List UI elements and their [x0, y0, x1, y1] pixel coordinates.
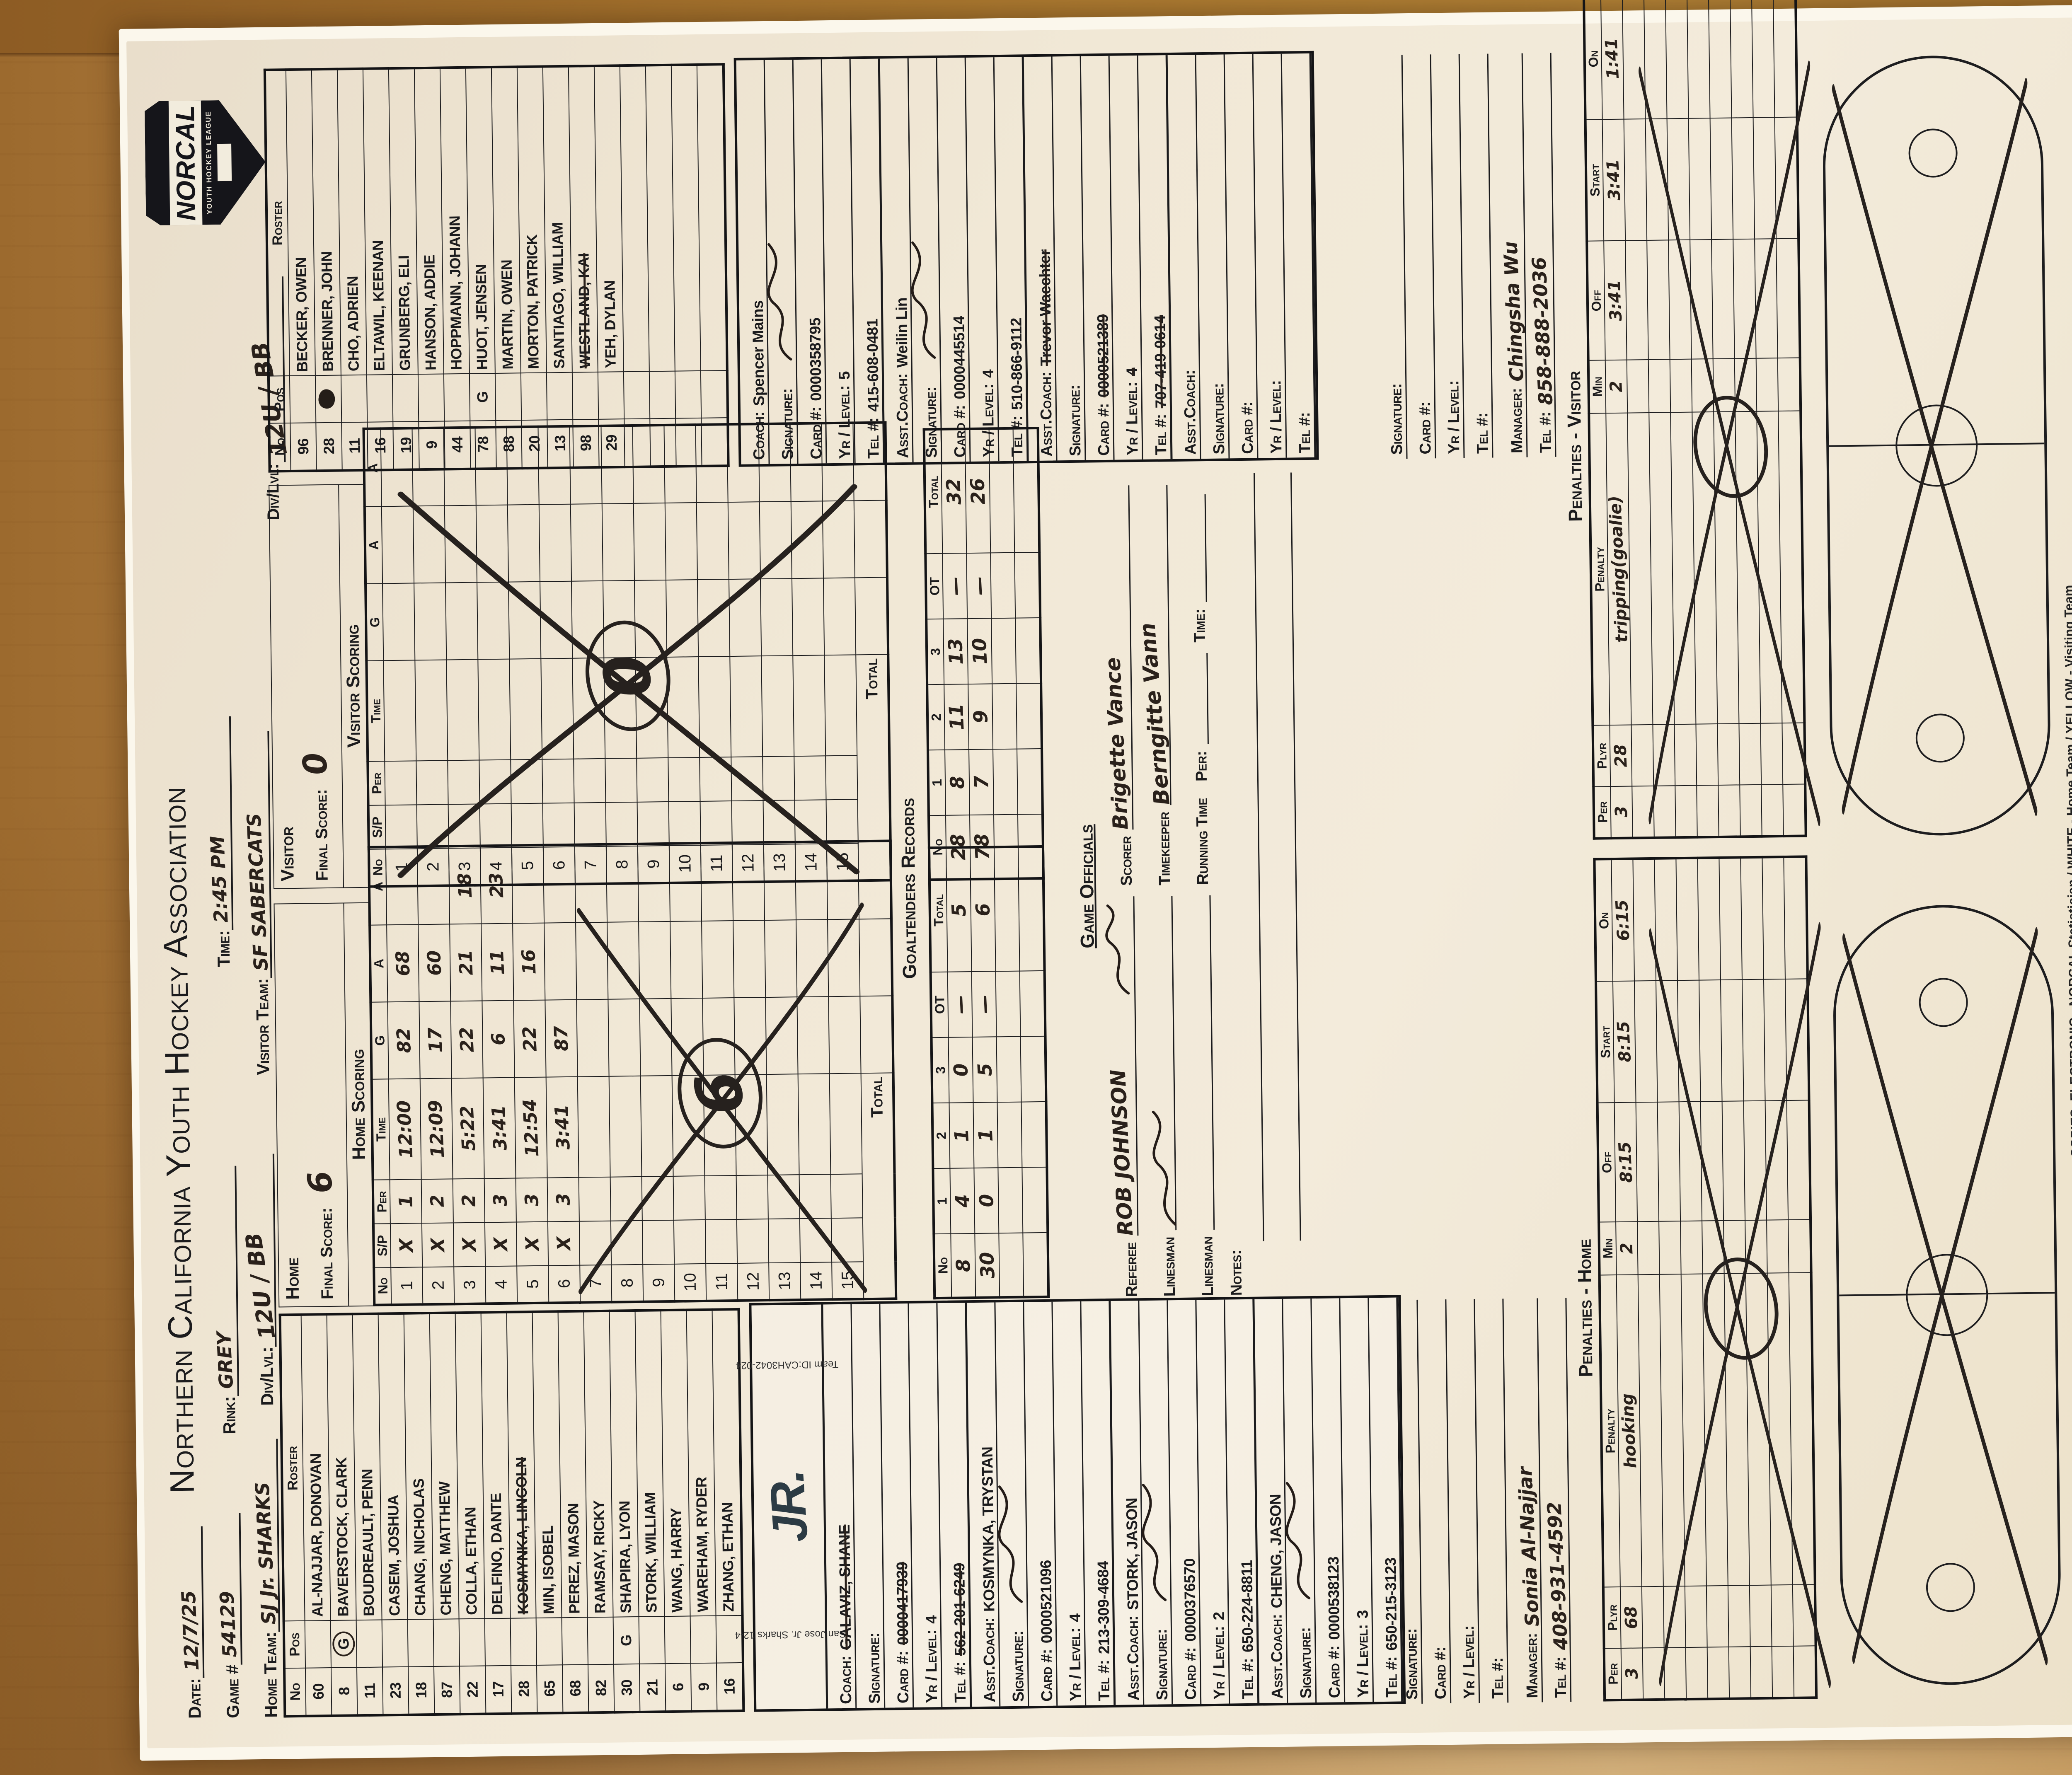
- tel-number: 415-608-0481: [864, 319, 882, 412]
- goalie-value: 6: [971, 902, 994, 917]
- scoring-g-value: 6: [487, 1032, 509, 1046]
- pen-per: 3: [1610, 786, 1633, 839]
- home-div-label: Div/Lvl:: [257, 1347, 278, 1406]
- game-officials-block: Game Officials Referee ROB JOHNSON Score…: [1070, 473, 1302, 1298]
- col-time: Time: [372, 1079, 390, 1180]
- visitor-roster-pos-header: Pos: [269, 376, 290, 423]
- scoring-g-value: 87: [550, 1025, 573, 1052]
- coach-tel-row: Tel #:213-309-4684: [1081, 1301, 1116, 1705]
- table-row: 28KOSMYNKA, LINCOLN: [507, 1312, 537, 1714]
- pen-col-per: Per: [1593, 786, 1611, 838]
- col-1: 1: [928, 750, 946, 815]
- player-position: [562, 1617, 588, 1665]
- coach-signature-row: Signature:: [852, 1304, 885, 1708]
- manager-label: Manager:: [1523, 1633, 1542, 1698]
- player-position: [392, 374, 419, 422]
- card-number: 0000376570: [1181, 1558, 1199, 1642]
- scoring-time: 3:41: [483, 1078, 516, 1179]
- scoring-per-value: 3: [489, 1193, 511, 1207]
- scoring-sp: X: [516, 1222, 548, 1266]
- player-name: WESTLAND, KAI: [569, 66, 598, 372]
- home-extra-signature-block: Signature:Card #:Yr / Level:Tel #:: [1389, 1299, 1508, 1704]
- table-row: 78GHUOT, JENSEN: [466, 67, 496, 469]
- linesman2-line: [1183, 895, 1215, 1230]
- player-name: [620, 65, 649, 372]
- referee-name: ROB JOHNSON: [1106, 1069, 1138, 1236]
- table-row: 21STORK, WILLIAM: [635, 1310, 666, 1712]
- coach-card-row: Card #:0000445514: [937, 58, 971, 462]
- home-team-logo-row: San Jose Jr. Sharks 12-4 JR. Team ID:CAH…: [751, 1304, 828, 1709]
- coach-signature-row: Signature:: [909, 58, 942, 462]
- scoring-a1-value: 16: [518, 948, 540, 975]
- player-name: [671, 65, 701, 371]
- goalie-value: 5: [947, 903, 970, 917]
- tel-label: Tel #:: [1095, 1660, 1113, 1701]
- table-row: 2X212:091760: [417, 846, 454, 1304]
- yr-level-label: Yr / Level:: [1460, 1625, 1479, 1699]
- player-position: [536, 1618, 562, 1665]
- goalie-value: 30: [975, 1251, 999, 1279]
- coach-role-label: Coach:: [837, 1656, 855, 1704]
- coach-yr-row: Yr / Level:4: [1110, 56, 1143, 460]
- goalie-cell: 8: [951, 1233, 975, 1298]
- goalie-value: 28: [946, 833, 970, 861]
- card-label: Card #:: [1416, 401, 1435, 454]
- scoring-per-value: 1: [395, 1195, 416, 1208]
- scoring-g-value: 82: [393, 1027, 415, 1054]
- goalie-value: 8: [946, 775, 968, 790]
- pen-plyr-value: 68: [1621, 1606, 1641, 1630]
- goalie-cell: 8: [945, 750, 970, 815]
- pen-plyr: 68: [1620, 1586, 1643, 1648]
- coach-signature-row: Signature:: [1053, 56, 1086, 461]
- referee-signature: [1100, 901, 1135, 1001]
- signature-label: Signature:: [865, 1632, 884, 1704]
- player-name: MORTON, PATRICK: [517, 67, 547, 373]
- home-roster-no-header: No: [284, 1668, 306, 1717]
- col-no: No: [369, 849, 386, 886]
- time-line: [1178, 494, 1207, 602]
- visitor-manager-name: Chingsha Wu: [1499, 241, 1528, 382]
- scoring-sp-value: X: [553, 1236, 575, 1251]
- pen-on-value: 1:41: [1602, 38, 1623, 80]
- player-number: 28: [316, 423, 342, 471]
- player-number: 29: [598, 419, 625, 467]
- jr-sharks-logo: JR.: [758, 1470, 819, 1544]
- pen-off-value: 3:41: [1605, 279, 1626, 322]
- table-row: 28BRENNER, JOHN: [312, 69, 342, 471]
- player-name: CHO, ADRIEN: [337, 69, 367, 375]
- pen-per-value: 3: [1612, 805, 1631, 818]
- visitor-roster-header: Roster: [265, 70, 290, 376]
- table-row: 9HANSON, ADDIE: [414, 68, 445, 470]
- coach-role-label: Asst.Coach:: [980, 1618, 999, 1702]
- player-number: 96: [290, 423, 316, 471]
- home-team-label: Home Team:: [260, 1632, 281, 1718]
- player-number: 30: [614, 1664, 640, 1712]
- manager-label: Manager:: [1508, 388, 1526, 453]
- table-row: [620, 65, 651, 467]
- pen-col-per: Per: [1604, 1648, 1622, 1700]
- goalie-cell: —: [972, 971, 997, 1037]
- player-name: AL-NAJJAR, DONOVAN: [301, 1314, 331, 1621]
- scoring-sp-value: X: [395, 1238, 417, 1253]
- coach-role-label: Asst.Coach:: [1268, 1614, 1287, 1699]
- goalie-value: 13: [944, 638, 968, 665]
- extra-signature-label: Signature:: [1389, 1300, 1423, 1704]
- table-row: 82RAMSAY, RICKY: [584, 1311, 615, 1713]
- goalie-value: 5: [973, 1062, 996, 1077]
- goalie-cell: 10: [967, 618, 992, 684]
- time2-label: Time:: [1191, 609, 1209, 643]
- player-position: [418, 374, 444, 421]
- player-position: G: [470, 373, 496, 421]
- player-number: 23: [382, 1667, 409, 1715]
- yr-level: 5: [836, 371, 853, 380]
- col-3: 3: [932, 1037, 949, 1103]
- player-name: [646, 65, 675, 372]
- goalie-cell: [997, 1037, 1021, 1103]
- player-position: [305, 1620, 331, 1668]
- coach-signature-row: Signature:: [1139, 1300, 1173, 1705]
- player-position: [701, 370, 728, 418]
- date-field: Date: 12/7/25: [178, 1526, 205, 1719]
- visitor-rink-crossout: [1826, 64, 2043, 833]
- col-a: A: [370, 925, 387, 1002]
- col-g: G: [366, 583, 383, 660]
- scorer-name: Brigette Vance: [1101, 657, 1133, 830]
- card-number: 0000445514: [950, 316, 968, 399]
- per-line: [1180, 653, 1209, 745]
- coach-tel-row: Tel #:562-201-6249: [937, 1303, 972, 1707]
- home-final-score-label: Final Score:: [317, 1207, 336, 1299]
- running-time-label: Running Time: [1193, 798, 1213, 885]
- signature-scribble: [1137, 1480, 1174, 1605]
- linesman2-label: Linesman: [1198, 1236, 1217, 1296]
- player-position: [367, 375, 393, 422]
- scoring-sp-value: X: [490, 1237, 512, 1252]
- visitor-final-score-value: 0: [295, 750, 335, 777]
- goalie-cell: [991, 618, 1016, 684]
- goalie-value: —: [973, 994, 996, 1014]
- table-row: 17DELFINO, DANTE: [481, 1312, 512, 1714]
- table-row: [1018, 846, 1048, 1297]
- home-div-value: 12U / BB: [240, 1231, 281, 1341]
- scorer-label: Scorer: [1118, 836, 1136, 886]
- table-row: 23CASEM, JOSHUA: [378, 1313, 409, 1715]
- tel-label: Tel #:: [951, 1661, 970, 1703]
- home-goaltenders-table: No 1 2 3 OT Total 8410—530015—6: [928, 845, 1050, 1299]
- yr-level: 3: [1354, 1610, 1371, 1619]
- table-row: 18CHANG, NICHOLAS: [404, 1313, 435, 1715]
- goalie-value: 8: [952, 1258, 975, 1273]
- home-team-field: Home Team: SJ Jr. SHARKS: [253, 1439, 281, 1718]
- pen-col-on: On: [1584, 0, 1602, 120]
- scoring-a1-value: 21: [455, 949, 477, 976]
- coach-name: Trevor Waechter: [1036, 249, 1055, 366]
- table-row: 87CHENG, MATTHEW: [430, 1313, 460, 1715]
- signature-label: Signature:: [778, 388, 797, 460]
- goalie-cell: [1013, 428, 1040, 553]
- player-number: [701, 418, 728, 466]
- position-value: G: [474, 391, 491, 403]
- card-label: Card #:: [1095, 403, 1113, 456]
- scoring-a1-value: 60: [423, 950, 445, 976]
- pen-off: 8:15: [1615, 1102, 1638, 1222]
- norcal-badge-subtitle: YOUTH HOCKEY LEAGUE: [204, 111, 214, 214]
- table-row: 3X25:22222118: [449, 846, 486, 1304]
- position-blot-mark: [316, 388, 337, 410]
- table-row: 60AL-NAJJAR, DONOVAN: [301, 1314, 332, 1716]
- coach-card-row: Card #:: [1225, 54, 1259, 459]
- table-row: 5X312:542216: [512, 845, 549, 1303]
- player-name: PEREZ, MASON: [558, 1311, 588, 1618]
- coach-yr-row: Yr / Level:4: [966, 57, 1000, 462]
- row-number: 1: [391, 1267, 423, 1305]
- tel-label: Tel #:: [1537, 412, 1555, 453]
- position-value: G: [332, 1632, 355, 1657]
- coach-yr-row: Yr / Level:2: [1196, 1300, 1230, 1704]
- goalie-cell: 1: [949, 1103, 974, 1168]
- col-no: No: [934, 1234, 951, 1298]
- goalie-value: 7: [970, 775, 992, 789]
- pen-min: 2: [1605, 360, 1628, 414]
- player-number: 21: [639, 1664, 666, 1712]
- player-position: [341, 375, 367, 423]
- tel-number: 562-201-6249: [951, 1563, 969, 1656]
- table-row: 22COLLA, ETHAN: [455, 1313, 486, 1715]
- player-number: 11: [357, 1667, 383, 1716]
- tel-label: Tel #:: [1152, 414, 1170, 455]
- date-label: Date:: [184, 1678, 205, 1719]
- yr-level: 4: [1123, 368, 1141, 376]
- scoring-time: 12:00: [389, 1079, 421, 1180]
- goalie-cell: [1021, 1102, 1047, 1168]
- player-name: MIN, ISOBEL: [533, 1311, 562, 1618]
- card-number: 0000521096: [1037, 1560, 1055, 1643]
- signature-label: Signature:: [1387, 383, 1406, 455]
- card-label: Card #:: [1432, 1647, 1450, 1699]
- pen-start-value: 3:41: [1603, 159, 1624, 201]
- player-position: [547, 372, 573, 420]
- player-number: 11: [341, 422, 368, 471]
- extra-card-label: Card #:: [1418, 1299, 1451, 1704]
- goalie-cell: 0: [974, 1168, 999, 1233]
- signature-scribble: [1280, 1479, 1318, 1603]
- pen-penalty: tripping(goalie): [1606, 413, 1631, 725]
- visitor-team-value: SF SABERCATS: [242, 813, 272, 972]
- player-name: WAREHAM, RYDER: [687, 1310, 716, 1616]
- tel-number: 213-309-4684: [1094, 1561, 1113, 1654]
- pen-off: 3:41: [1604, 241, 1627, 360]
- pen-min-value: 2: [1607, 380, 1626, 393]
- table-row: 30GSHAPIRA, LYON: [610, 1311, 640, 1712]
- scoring-time-value: 12:54: [519, 1098, 543, 1157]
- player-position: G: [331, 1620, 357, 1668]
- scoring-g: 6: [482, 1001, 514, 1078]
- pen-penalty-value: hooking: [1618, 1393, 1640, 1469]
- table-row: 11CHO, ADRIEN: [337, 69, 368, 471]
- pen-start: 8:15: [1613, 981, 1636, 1103]
- player-position: [675, 371, 701, 418]
- home-final-score-box: Home Final Score: 6: [274, 903, 348, 1308]
- goalie-cell: 5: [973, 1037, 997, 1103]
- rink-label: Rink:: [219, 1396, 240, 1434]
- pen-min: 2: [1616, 1221, 1638, 1275]
- yr-level-label: Yr / Level:: [1354, 1624, 1372, 1698]
- player-position: [433, 1619, 460, 1666]
- player-name: COLLA, ETHAN: [455, 1313, 485, 1619]
- goalie-cell: 9: [968, 684, 993, 750]
- coach-card-row: Card #:0000376570: [1168, 1300, 1201, 1704]
- scoring-sp-value: X: [521, 1236, 543, 1251]
- visitor-extra-signature-block: Signature:Card #:Yr / Level:Tel #:: [1374, 54, 1493, 459]
- goalie-cell: 7: [969, 749, 994, 815]
- scoring-g-value: 22: [519, 1025, 541, 1052]
- pen-penalty-value: tripping(goalie): [1606, 495, 1631, 643]
- extra-card-label: Card #:: [1403, 54, 1436, 459]
- scoring-time-value: 12:09: [424, 1099, 448, 1158]
- home-manager-block: Manager: Sonia Al-Najjar Tel #: 408-931-…: [1509, 1298, 1571, 1703]
- table-row: 13SANTIAGO, WILLIAM: [543, 66, 574, 468]
- card-label: Card #:: [1182, 1647, 1201, 1700]
- goalie-cell: 0: [949, 1037, 973, 1103]
- goalie-cell: [989, 428, 1015, 553]
- team-id-small-text: Team ID:CAH3042-024: [736, 1358, 838, 1371]
- goalie-cell: 28: [946, 815, 971, 880]
- col-no: No: [374, 1267, 391, 1305]
- visitor-goaltenders-table: No 1 2 3 OT Total 2881113—32787910—26: [923, 427, 1045, 881]
- pen-col-off: Off: [1587, 241, 1605, 360]
- player-number: 9: [691, 1663, 717, 1712]
- scoring-sp: X: [485, 1222, 517, 1266]
- player-position: [290, 375, 316, 423]
- coach-signature-row: Signature:: [1196, 54, 1230, 459]
- signature-label: Signature:: [1066, 385, 1084, 457]
- table-row: 44HOPPMANN, JOHANN: [440, 68, 471, 469]
- player-name: CHENG, MATTHEW: [430, 1313, 459, 1619]
- goalie-value: 1: [950, 1128, 973, 1143]
- table-row: 20MORTON, PATRICK: [517, 67, 548, 469]
- norcal-shield-icon: NORCAL YOUTH HOCKEY LEAGUE: [145, 100, 266, 226]
- goalie-cell: [990, 553, 1015, 619]
- coach-tel-row: Tel #:: [1282, 53, 1317, 458]
- goalie-cell: [1014, 552, 1040, 618]
- row-number: 4: [485, 1266, 517, 1303]
- scoring-a1: 21: [450, 924, 482, 1001]
- player-position: [459, 1619, 485, 1666]
- pen-start: 3:41: [1602, 119, 1626, 241]
- goalie-cell: —: [966, 553, 991, 619]
- pen-penalty: hooking: [1617, 1274, 1642, 1587]
- player-number: 17: [485, 1666, 511, 1714]
- scoring-per-value: 3: [521, 1193, 542, 1207]
- player-position: [511, 1618, 537, 1666]
- col-per: Per: [368, 761, 385, 805]
- time-field: Time: 2:45 PM: [206, 716, 234, 967]
- player-position: [356, 1620, 382, 1668]
- coach-tel-row: Tel #:415-608-0481: [851, 59, 885, 463]
- game-number-field: Game # 54129: [215, 1513, 243, 1719]
- player-number: 88: [496, 420, 522, 469]
- tel-label: Tel #:: [864, 417, 883, 459]
- visitor-manager-block: Manager: Chingsha Wu Tel #: 858-888-2036: [1494, 53, 1556, 458]
- visitor-coach-block: Coach:Spencer MainsSignature:Card #:0000…: [734, 51, 1319, 467]
- col-g: G: [370, 1002, 388, 1079]
- col-sp: S/P: [368, 805, 386, 849]
- col-sp: S/P: [373, 1224, 391, 1267]
- coach-name: GALAVIZ, SHANE: [836, 1524, 855, 1650]
- pen-col-on: On: [1594, 859, 1613, 981]
- player-name: MARTIN, OWEN: [491, 67, 521, 373]
- extra-tel-label: Tel #:: [1460, 54, 1493, 458]
- player-name: HANSON, ADDIE: [414, 68, 444, 375]
- player-number: 8: [331, 1667, 357, 1716]
- player-number: 78: [470, 421, 496, 469]
- goalie-cell: 26: [965, 428, 991, 553]
- col-time: Time: [366, 660, 385, 761]
- visitor-final-score-label: Final Score:: [312, 789, 332, 881]
- signature-label: Signature:: [1297, 1627, 1315, 1699]
- player-number: 13: [547, 420, 573, 468]
- table-row: 11BOUDREAULT, PENN: [353, 1314, 383, 1716]
- player-number: 65: [537, 1665, 563, 1713]
- goalie-value: 4: [951, 1194, 974, 1208]
- timekeeper-signature-name: Berngitte Vann: [1135, 622, 1175, 806]
- visitor-team-field: Visitor Team: SF SABERCATS: [244, 731, 273, 1075]
- scoring-time-value: 5:22: [456, 1105, 479, 1152]
- scoring-sp: X: [390, 1223, 422, 1267]
- player-name: BOUDREAULT, PENN: [353, 1314, 382, 1620]
- player-position: [624, 371, 650, 419]
- pen-min-value: 2: [1617, 1242, 1636, 1255]
- game-number-value: 54129: [215, 1591, 241, 1658]
- player-position: [485, 1618, 511, 1666]
- visitor-roster-no-header: No: [269, 423, 290, 472]
- coach-card-row: Card #:0000417939: [880, 1303, 914, 1708]
- player-name: RAMSAY, RICKY: [584, 1311, 613, 1618]
- scoring-g: 22: [450, 1001, 483, 1078]
- signature-label: Signature:: [1009, 1631, 1028, 1702]
- player-number: 6: [665, 1663, 691, 1712]
- table-row: 68PEREZ, MASON: [558, 1311, 589, 1713]
- linesman-signature: [1147, 1106, 1182, 1231]
- goalie-cell: 13: [943, 619, 968, 684]
- coach-role-label: Coach:: [750, 411, 768, 460]
- col-2: 2: [932, 1103, 950, 1168]
- pen-col-start: Start: [1585, 119, 1604, 241]
- goalie-cell: [1023, 1233, 1048, 1297]
- col-total: Total: [924, 429, 943, 554]
- pen-col-off: Off: [1598, 1103, 1616, 1222]
- player-name: CASEM, JOSHUA: [378, 1313, 408, 1620]
- coach-role-label: Asst.Coach:: [1124, 1616, 1143, 1701]
- player-position: [315, 375, 341, 423]
- goalie-cell: [1020, 971, 1046, 1037]
- player-name: DELFINO, DANTE: [481, 1312, 511, 1619]
- table-row: [671, 65, 702, 467]
- home-roster-table: No Pos Roster 60AL-NAJJAR, DONOVAN8GBAVE…: [279, 1308, 745, 1718]
- player-position: [572, 372, 598, 420]
- table-row: 88MARTIN, OWEN: [491, 67, 522, 469]
- player-number: 82: [588, 1664, 614, 1713]
- player-name: [697, 64, 727, 371]
- scoring-per-value: 2: [426, 1194, 448, 1208]
- goalie-value: —: [967, 576, 990, 595]
- norcal-badge: NORCAL YOUTH HOCKEY LEAGUE: [145, 93, 275, 232]
- yr-level: 4: [923, 1615, 940, 1624]
- linesman-label: Linesman: [1160, 1237, 1179, 1296]
